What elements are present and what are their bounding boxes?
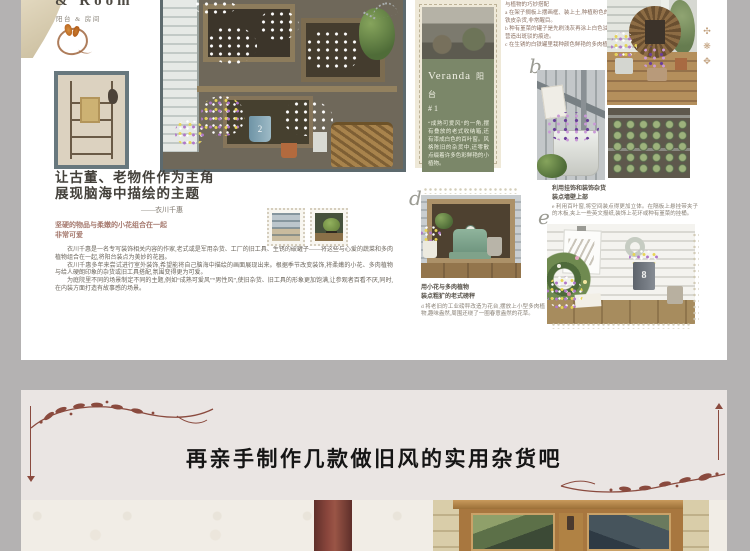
scale-base bbox=[449, 252, 491, 259]
wreath-flower bbox=[557, 264, 561, 268]
article-author: ——衣川千惠 bbox=[141, 205, 285, 215]
paragraph: 为庭院里不同的场景制定不同的主题,例如“成熟可爱风”“男性风”,使旧杂货、旧工具… bbox=[55, 278, 393, 294]
terracotta-pot bbox=[281, 143, 297, 158]
window-hinge bbox=[567, 516, 574, 530]
lace-border bbox=[692, 232, 699, 324]
ornament-column: ✣ ❋ ✥ bbox=[700, 24, 714, 69]
clipboard-clip bbox=[577, 226, 586, 231]
photo-letter-d: d bbox=[409, 186, 422, 210]
wreath-flower bbox=[575, 256, 579, 260]
stamp-photo-2 bbox=[310, 208, 348, 246]
hanging-frame bbox=[80, 97, 100, 123]
wood-ledge bbox=[421, 263, 521, 278]
floral-flourish-top-left bbox=[27, 394, 217, 438]
ornament-glyph: ✣ bbox=[700, 24, 714, 39]
magazine-sheet: & Room 阳台 & 房间 2 V bbox=[21, 0, 727, 360]
window-wall-photo bbox=[21, 500, 727, 551]
ornament-glyph: ❋ bbox=[700, 39, 714, 54]
succulent-rosettes bbox=[611, 119, 687, 175]
foliage bbox=[207, 26, 257, 64]
section-d-caption: 用小花与多肉植物 装点粗犷的老式磅秤 d 将老旧的工业磅秤改造为花台,摆放上小型… bbox=[421, 284, 551, 318]
pansy-flowers bbox=[545, 112, 599, 142]
metal-jug bbox=[487, 237, 502, 256]
veranda-title-en: Veranda bbox=[428, 70, 471, 82]
shelf-board bbox=[197, 86, 397, 92]
veranda-body: “成熟可爱风”的一角,摆有叠放的老式收纳箱,还有漆成白色的百叶窗。风格陈旧的杂货… bbox=[428, 120, 489, 168]
stamp-photo-1 bbox=[267, 208, 305, 246]
plant-pot bbox=[615, 58, 633, 74]
flower-basket bbox=[547, 276, 583, 310]
white-pot bbox=[423, 241, 437, 258]
lead-line2: 非常可爱 bbox=[55, 231, 255, 241]
lace-border bbox=[551, 322, 691, 329]
d-heading-line1: 用小花与多肉植物 bbox=[421, 284, 551, 293]
section-e-caption: 利用挂饰和装饰杂货 装点墙壁上部 e 利用百叶窗,将空间装点得更加立体。在隔板上… bbox=[552, 185, 698, 218]
masthead-subtitle: 阳台 & 房间 bbox=[56, 13, 101, 23]
white-can bbox=[313, 132, 327, 152]
article-lead: 坚硬的物品与柔嫩的小花组合在一起 非常可爱 bbox=[55, 221, 255, 240]
stamp-image bbox=[272, 213, 300, 241]
ornament-glyph: ✥ bbox=[700, 54, 714, 69]
article-title-line2: 展现脑海中描绘的主题 bbox=[55, 186, 285, 202]
hanging-planter: 8 bbox=[633, 262, 655, 290]
veranda-card: Veranda阳 台 # 1 “成熟可爱风”的一角,摆有叠放的老式收纳箱,还有漆… bbox=[415, 0, 501, 168]
article-header: 让古董、老物件作为主角 展现脑海中描绘的主题 ——衣川千惠 bbox=[55, 170, 285, 215]
d-heading-line2: 装点粗犷的老式磅秤 bbox=[421, 293, 551, 302]
foliage bbox=[283, 100, 333, 136]
wicker-basket bbox=[331, 122, 393, 167]
plant-pot bbox=[675, 58, 687, 70]
article-title-line1: 让古董、老物件作为主角 bbox=[55, 170, 285, 186]
wreath-flower bbox=[583, 280, 587, 284]
e-heading-line2: 装点墙壁上部 bbox=[552, 194, 698, 203]
stamp-image bbox=[315, 213, 343, 241]
foliage bbox=[305, 30, 361, 72]
foliage bbox=[193, 0, 237, 14]
scale-crate-photo bbox=[421, 195, 521, 278]
metal-rim bbox=[608, 115, 690, 118]
dried-bouquet bbox=[108, 89, 118, 104]
veranda-card-border: Veranda阳 台 # 1 “成熟可爱风”的一角,摆有叠放的老式收纳箱,还有漆… bbox=[419, 4, 497, 164]
stone-border-right bbox=[683, 500, 709, 551]
trailing-plant bbox=[537, 154, 567, 178]
lace-border bbox=[423, 187, 519, 194]
red-wood-post bbox=[314, 500, 352, 551]
banner-title: 再亲手制作几款做旧风的实用杂货吧 bbox=[21, 443, 727, 473]
wood-window bbox=[459, 500, 683, 551]
e-heading-line1: 利用挂饰和装饰杂货 bbox=[552, 185, 698, 194]
vintage-scale bbox=[453, 229, 487, 253]
article-body: 衣川千惠是一名专写装饰相关内容的作家,老式或是军用杂货、工厂的旧工具、生锈的破罐… bbox=[55, 247, 393, 294]
moss-ball bbox=[323, 218, 340, 232]
paragraph: 衣川千惠是一名专写装饰相关内容的作家,老式或是军用杂货、工厂的旧工具、生锈的破罐… bbox=[55, 247, 393, 263]
product-detail-image: { "masthead": { "title_fragment": "& Roo… bbox=[0, 0, 750, 551]
arrow-down-icon bbox=[27, 476, 35, 482]
foliage bbox=[435, 213, 453, 229]
window-pane-left bbox=[471, 513, 555, 551]
foliage bbox=[201, 96, 245, 136]
ladder-frame-photo bbox=[54, 71, 129, 169]
d-note: d 将老旧的工业磅秤改造为花台,摆放上小型多肉植物,趣味盎然,周围还绕了一圈春意… bbox=[421, 304, 545, 318]
veranda-card-photo bbox=[422, 7, 494, 59]
e-note: e 利用百叶窗,将空间装点得更加立体。在隔板上悬挂带夹子的木板,夹上一些英文报纸… bbox=[552, 204, 698, 218]
plant-pot bbox=[667, 286, 683, 304]
window-pane-right bbox=[587, 513, 671, 551]
table-edge bbox=[315, 233, 343, 241]
arrow-up-icon bbox=[715, 403, 723, 409]
banner-panel: 再亲手制作几款做旧风的实用杂货吧 bbox=[21, 390, 727, 500]
paragraph: 衣川千惠多年来尝试进行室外装饰,希望能将自己脑海中描绘的画面展现出来。根据季节改… bbox=[55, 263, 393, 279]
foliage bbox=[175, 120, 205, 146]
blue-bucket: 2 bbox=[249, 116, 271, 142]
window-lintel bbox=[453, 500, 689, 509]
basket-chair-photo bbox=[607, 0, 697, 105]
succulent-boxes-photo bbox=[608, 108, 690, 178]
coffee-ring-tail bbox=[78, 44, 93, 56]
veranda-number: # 1 bbox=[428, 104, 489, 113]
pansy-bucket-photo bbox=[537, 70, 605, 180]
flower-plant bbox=[641, 46, 671, 70]
wall-decor-photo: 8 bbox=[547, 224, 695, 324]
foliage bbox=[259, 10, 299, 40]
flower-cluster bbox=[421, 226, 441, 242]
floral-flourish-bottom-right bbox=[559, 470, 727, 496]
flower-plant bbox=[611, 32, 637, 60]
chair-center bbox=[645, 20, 665, 44]
lead-line1: 坚硬的物品与柔嫩的小花组合在一起 bbox=[55, 221, 255, 231]
masthead-title: & Room bbox=[55, 0, 141, 10]
veranda-card-text: Veranda阳 台 # 1 “成熟可爱风”的一角,摆有叠放的老式收纳箱,还有漆… bbox=[422, 59, 494, 172]
masthead: & Room bbox=[55, 0, 141, 12]
plant-pot bbox=[647, 68, 667, 81]
